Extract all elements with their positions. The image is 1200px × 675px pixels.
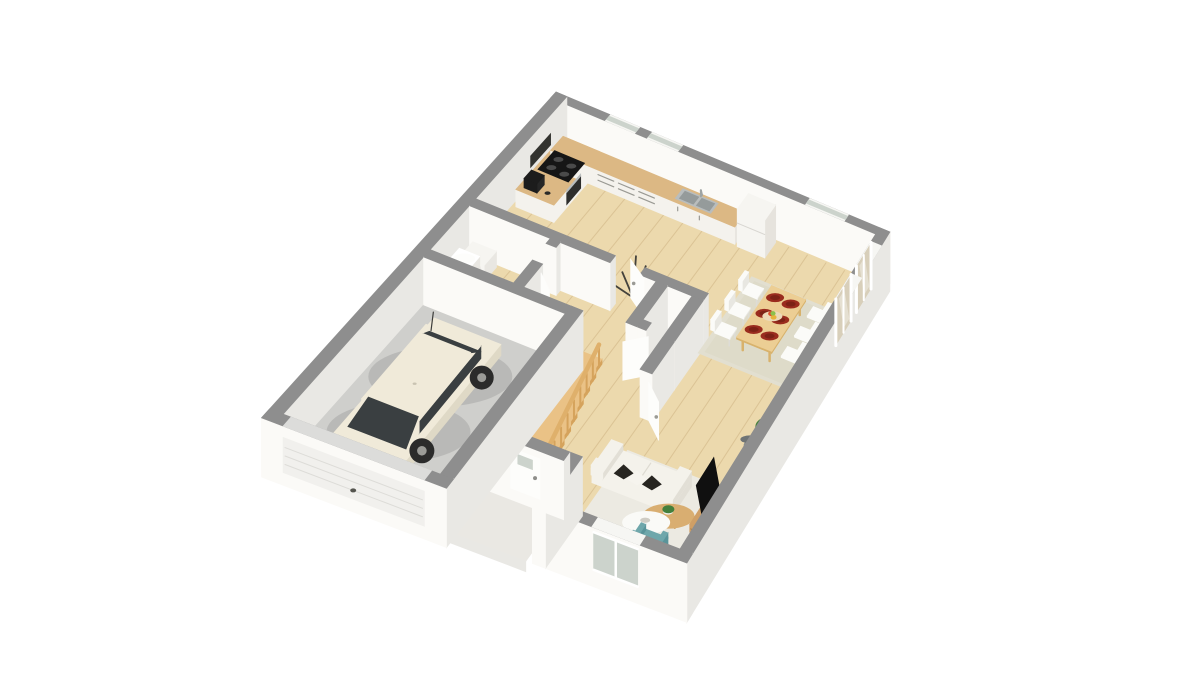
chair-back (739, 280, 743, 292)
wall (687, 554, 693, 623)
floorplan-render (0, 0, 1200, 675)
wall (532, 504, 545, 568)
floorplan-page (0, 0, 1200, 675)
wall (556, 243, 560, 296)
wall (610, 256, 616, 311)
fridge (737, 194, 776, 259)
wall (447, 479, 454, 547)
fruit-bowl (762, 311, 782, 321)
chair-back (725, 299, 729, 311)
chair-back (711, 320, 715, 332)
wall (564, 452, 570, 520)
